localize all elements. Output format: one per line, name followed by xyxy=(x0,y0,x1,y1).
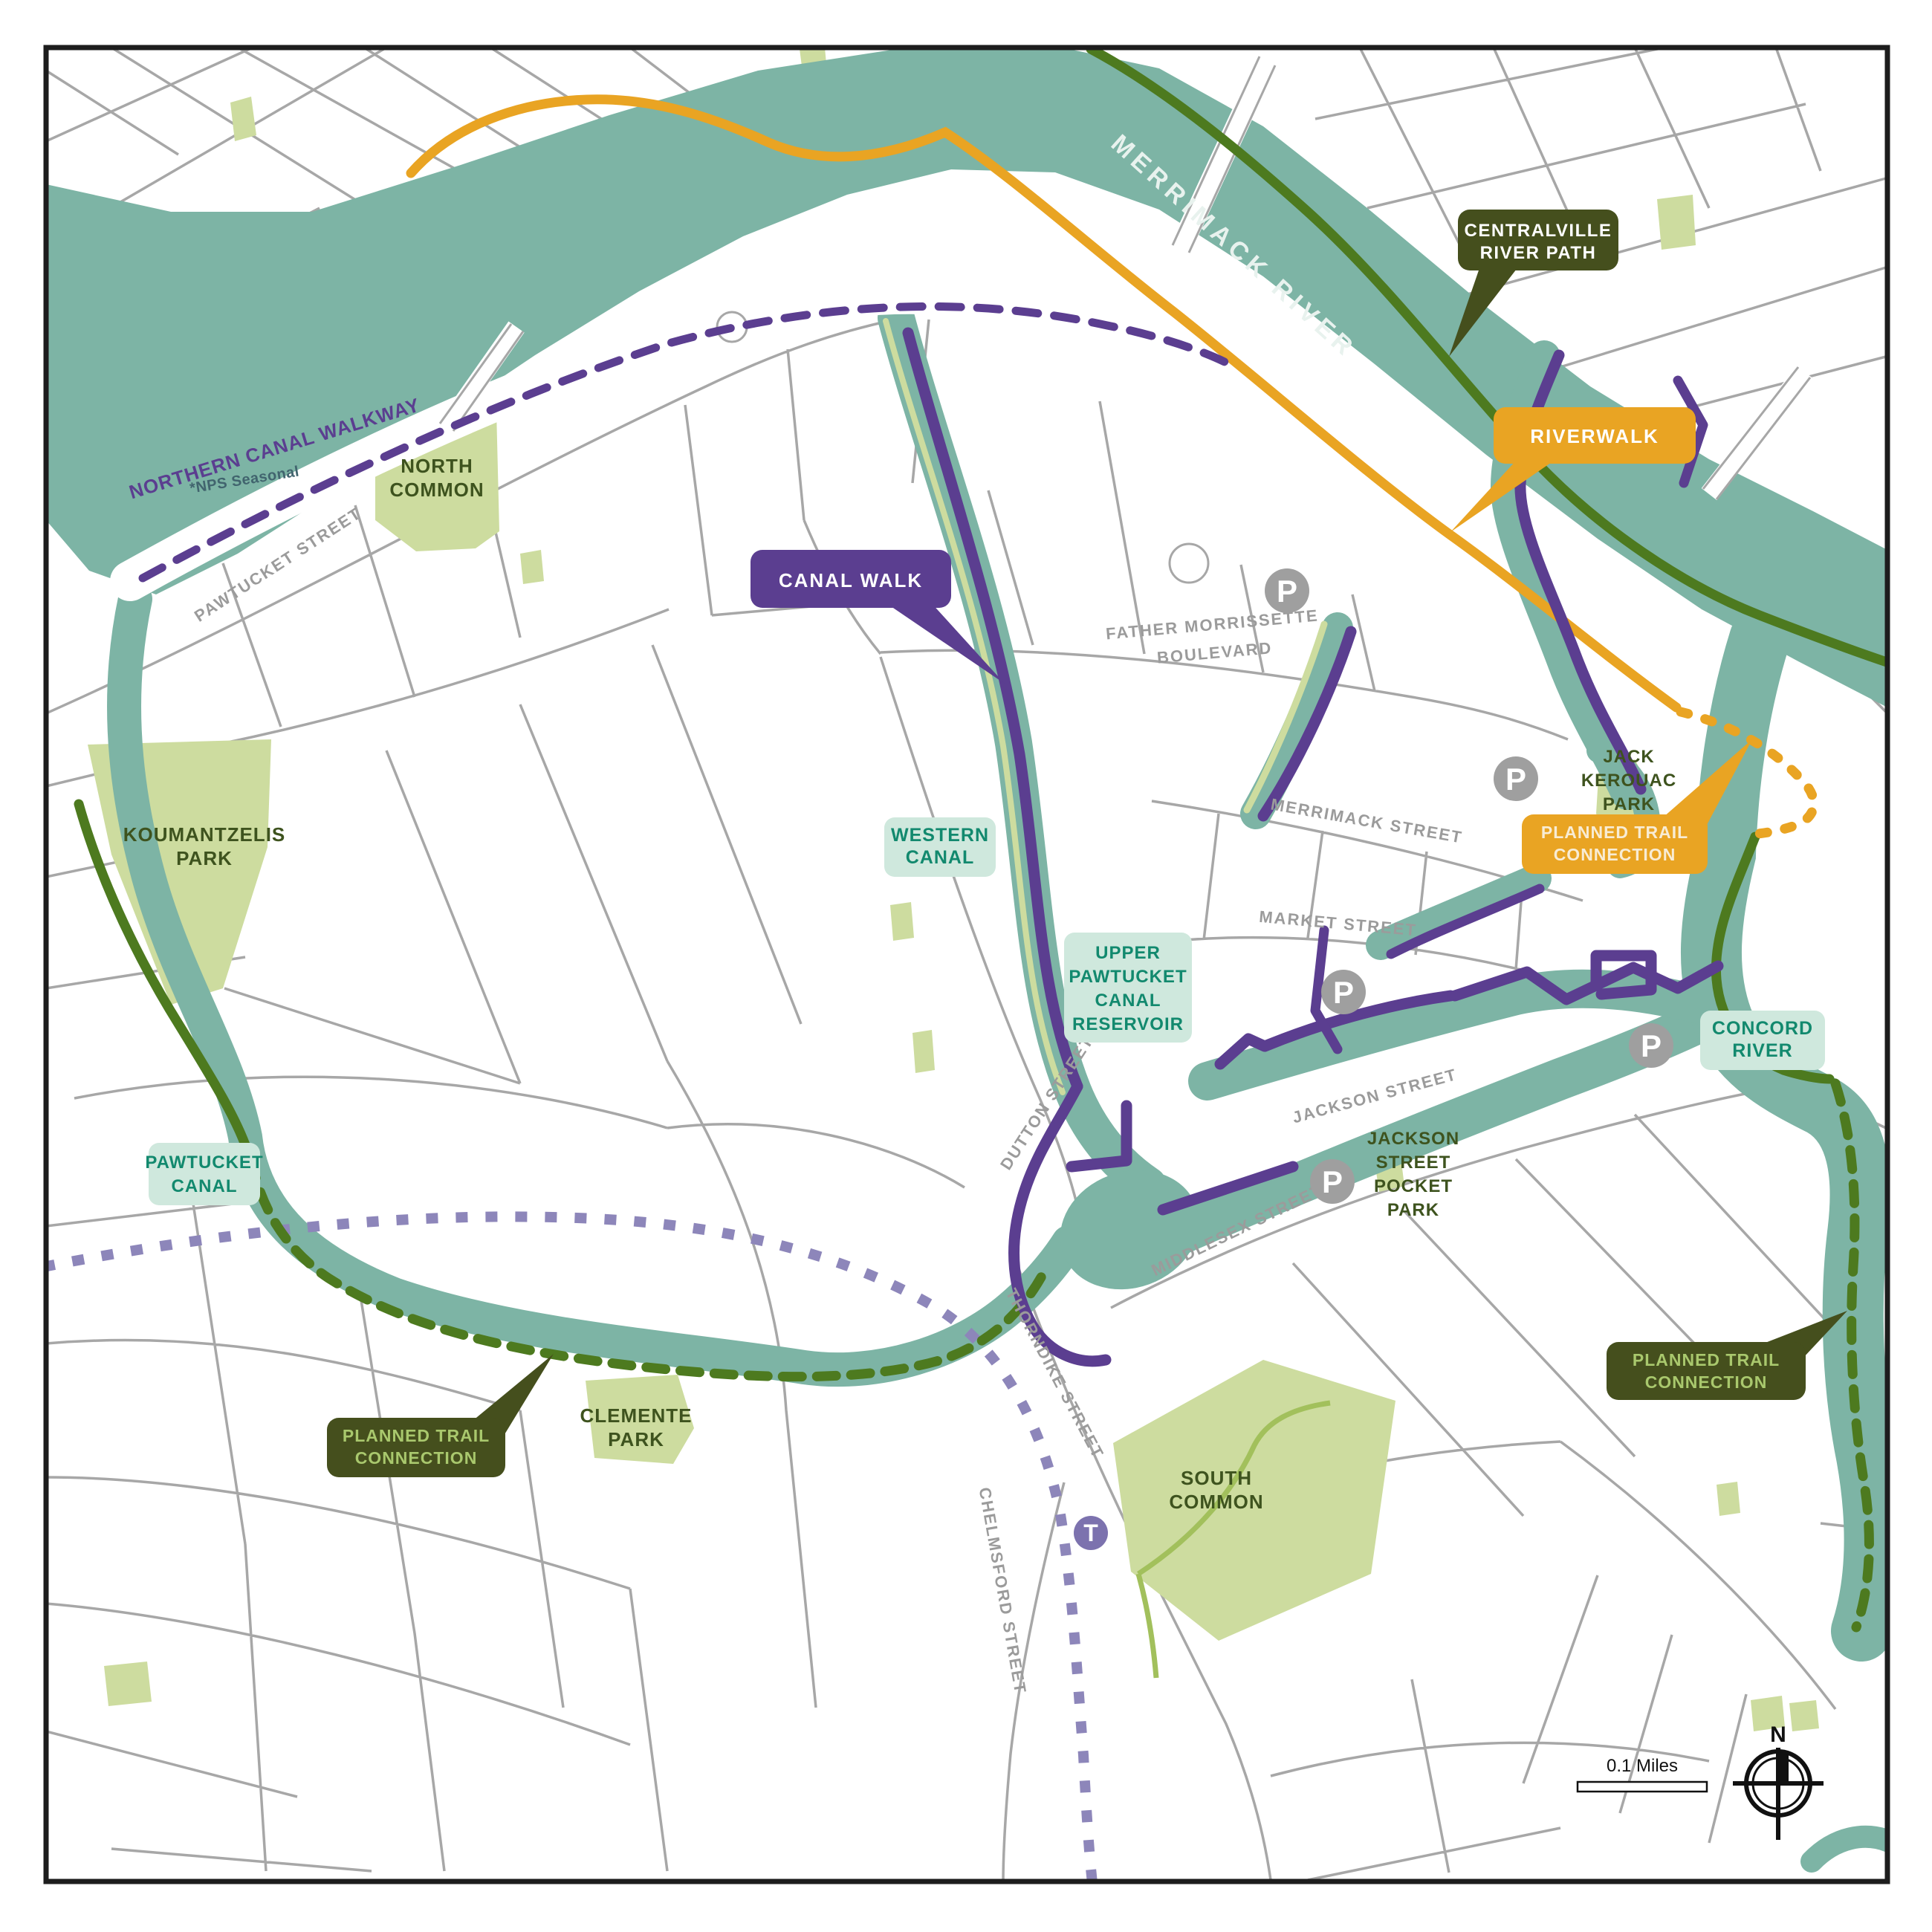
svg-text:P: P xyxy=(1333,975,1354,1010)
svg-text:RIVERWALK: RIVERWALK xyxy=(1530,425,1659,447)
father-morrissette-label: BOULEVARD xyxy=(1156,638,1273,667)
jackson-pocket-park-label: PARK xyxy=(1387,1200,1439,1220)
svg-text:P: P xyxy=(1641,1028,1662,1063)
svg-text:RIVER PATH: RIVER PATH xyxy=(1480,243,1597,263)
water-label-boxes: WESTERN CANAL UPPER PAWTUCKET CANAL RESE… xyxy=(145,817,1825,1205)
thorndike-street-label: THORNDIKE STREET xyxy=(1002,1286,1108,1462)
upper-pawtucket-reservoir-label: UPPER PAWTUCKET CANAL RESERVOIR xyxy=(1064,933,1192,1043)
merrimack-street-label: MERRIMACK STREET xyxy=(1269,795,1464,847)
north-common-label: COMMON xyxy=(389,479,484,501)
compass-needle xyxy=(1778,1751,1789,1783)
corner-stream-water xyxy=(1812,1837,1889,1861)
svg-text:T: T xyxy=(1083,1520,1098,1546)
svg-text:CONNECTION: CONNECTION xyxy=(1645,1372,1768,1392)
svg-text:PLANNED TRAIL: PLANNED TRAIL xyxy=(343,1426,490,1445)
svg-text:CANAL: CANAL xyxy=(906,847,975,868)
south-common-label: SOUTH xyxy=(1181,1467,1252,1489)
jack-kerouac-park-label: KEROUAC xyxy=(1581,771,1676,791)
svg-text:PLANNED TRAIL: PLANNED TRAIL xyxy=(1541,823,1688,842)
parking-icon: P xyxy=(1321,970,1366,1014)
svg-text:CONNECTION: CONNECTION xyxy=(1554,845,1676,864)
koumantzelis-park-label: PARK xyxy=(176,847,233,869)
north-common-label: NORTH xyxy=(401,455,473,477)
planned-trail-connection-callout-southeast: PLANNED TRAIL CONNECTION xyxy=(1607,1311,1847,1400)
jackson-pocket-park-label: POCKET xyxy=(1374,1176,1453,1196)
svg-text:P: P xyxy=(1505,762,1526,797)
chelmsford-street-label: CHELMSFORD STREET xyxy=(976,1486,1031,1696)
koumantzelis-park-label: KOUMANTZELIS xyxy=(123,823,286,846)
roundabout xyxy=(1170,544,1208,583)
svg-text:0.1 Miles: 0.1 Miles xyxy=(1607,1756,1678,1776)
commuter-rail-line xyxy=(43,1216,1092,1883)
pawtucket-canal-water xyxy=(124,599,1069,1369)
clemente-park-label: CLEMENTE xyxy=(580,1404,693,1427)
callouts: CENTRALVILLE RIVER PATH RIVERWALK CANAL … xyxy=(327,210,1847,1477)
south-common-label: COMMON xyxy=(1169,1491,1263,1513)
svg-text:CONNECTION: CONNECTION xyxy=(355,1448,478,1468)
svg-text:PLANNED TRAIL: PLANNED TRAIL xyxy=(1633,1350,1780,1369)
svg-text:UPPER: UPPER xyxy=(1095,943,1161,963)
svg-text:CANAL: CANAL xyxy=(1095,991,1161,1011)
parking-icon: P xyxy=(1494,756,1538,801)
jack-kerouac-park-label: PARK xyxy=(1603,794,1655,814)
parking-icon: P xyxy=(1310,1159,1355,1204)
scale-bar: 0.1 Miles xyxy=(1578,1756,1707,1792)
svg-text:N: N xyxy=(1770,1722,1786,1747)
svg-text:PAWTUCKET: PAWTUCKET xyxy=(1069,967,1187,987)
jack-kerouac-park-label: JACK xyxy=(1603,747,1654,767)
svg-text:RIVER: RIVER xyxy=(1732,1040,1792,1061)
parking-icon: P xyxy=(1629,1023,1673,1068)
market-street-label: MARKET STREET xyxy=(1258,907,1417,939)
svg-text:CONCORD: CONCORD xyxy=(1712,1018,1813,1039)
svg-text:P: P xyxy=(1322,1164,1343,1199)
jackson-pocket-park-label: JACKSON xyxy=(1367,1129,1459,1149)
svg-text:CANAL: CANAL xyxy=(172,1176,238,1196)
svg-text:P: P xyxy=(1277,574,1297,609)
svg-text:PAWTUCKET: PAWTUCKET xyxy=(145,1153,263,1173)
concord-river-label: CONCORD RIVER xyxy=(1700,1011,1825,1070)
trail-map: MERRIMACK RIVER NORTHERN CANAL WALKWAY *… xyxy=(0,0,1932,1932)
svg-text:CANAL WALK: CANAL WALK xyxy=(779,569,923,591)
svg-text:WESTERN: WESTERN xyxy=(891,825,989,846)
jackson-pocket-park-label: STREET xyxy=(1376,1153,1451,1173)
compass-rose: N xyxy=(1733,1722,1824,1840)
western-canal-label: WESTERN CANAL xyxy=(884,817,996,877)
clemente-park-label: PARK xyxy=(608,1428,664,1450)
parking-icon: P xyxy=(1265,568,1309,613)
transit-icon: T xyxy=(1074,1516,1108,1550)
svg-text:RESERVOIR: RESERVOIR xyxy=(1072,1014,1184,1034)
svg-text:CENTRALVILLE: CENTRALVILLE xyxy=(1465,221,1612,241)
pawtucket-canal-label: PAWTUCKET CANAL xyxy=(145,1143,263,1205)
